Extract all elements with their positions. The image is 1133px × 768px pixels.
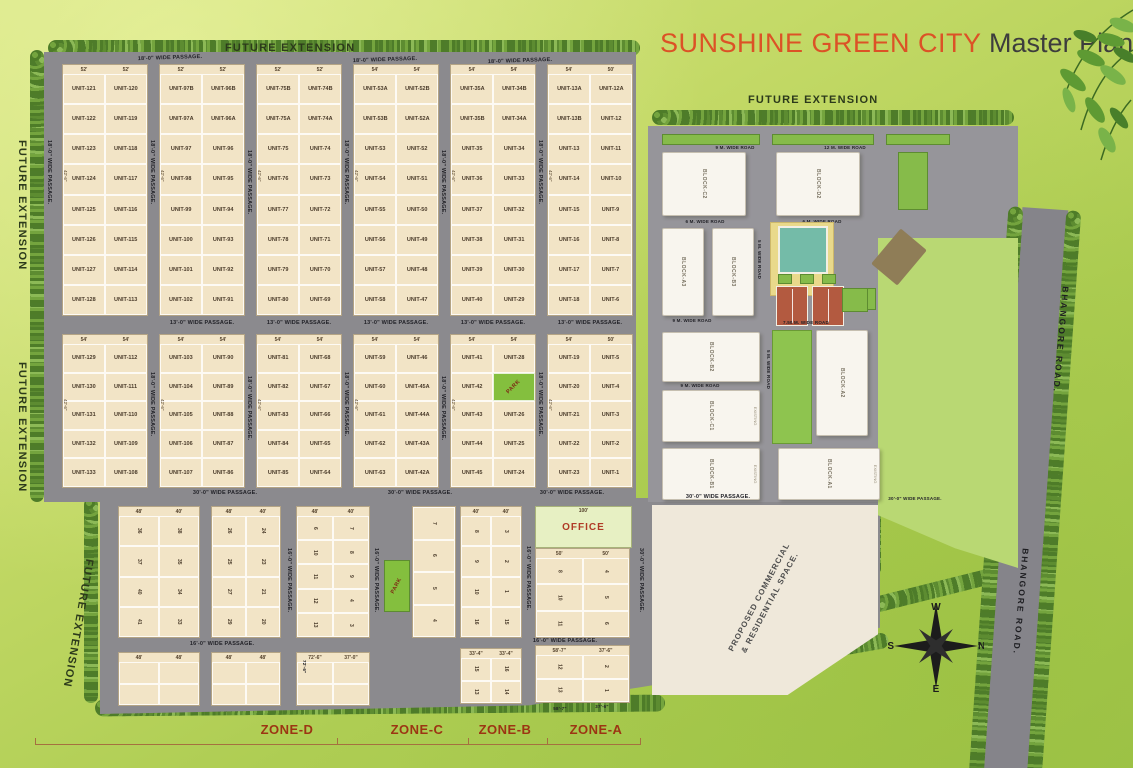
unit-plot: UNIT-92 bbox=[202, 255, 244, 285]
unit-plot: UNIT-68 bbox=[299, 344, 341, 373]
unit-plot: UNIT-131 bbox=[63, 401, 105, 430]
hedge-strip bbox=[772, 134, 874, 145]
unit-plot: UNIT-101 bbox=[160, 255, 202, 285]
unit-plot: UNIT-42A bbox=[396, 458, 438, 487]
future-extension-top: FUTURE EXTENSION bbox=[225, 42, 355, 54]
unit-plot: 8 bbox=[461, 516, 491, 546]
plot-block: 72'-6"37'-0" bbox=[296, 652, 370, 706]
unit-plot: 37 bbox=[119, 546, 159, 576]
compass-rose: W N S E bbox=[888, 598, 984, 694]
zone-tick bbox=[640, 738, 641, 745]
unit-plot: UNIT-104 bbox=[160, 373, 202, 402]
passage-label: 13'-0" WIDE PASSAGE. bbox=[364, 320, 428, 326]
passage-label: 16'-0" WIDE PASSAGE. bbox=[373, 548, 379, 612]
unit-plot: UNIT-73 bbox=[299, 164, 341, 194]
unit-plot: 7 bbox=[333, 516, 369, 540]
unit-plot: 10 bbox=[297, 540, 333, 564]
unit-plot bbox=[246, 662, 280, 684]
building-block: BLOCK-B3 bbox=[712, 228, 754, 316]
unit-plot: 12 bbox=[536, 655, 583, 679]
unit-plot: UNIT-60 bbox=[354, 373, 396, 402]
compass-e: E bbox=[933, 684, 940, 694]
passage-label: 18'-0" WIDE PASSAGE. bbox=[149, 372, 155, 436]
unit-plot: 34 bbox=[159, 577, 199, 607]
unit-plot: 12 bbox=[297, 589, 333, 613]
unit-plot: UNIT-96B bbox=[202, 74, 244, 104]
unit-plot: UNIT-75 bbox=[257, 134, 299, 164]
unit-plot bbox=[119, 684, 159, 706]
unit-plot: UNIT-4 bbox=[590, 373, 632, 402]
unit-plot: UNIT-110 bbox=[105, 401, 147, 430]
future-extension-left: FUTURE EXTENSION bbox=[16, 140, 28, 270]
unit-plot: 20 bbox=[246, 607, 280, 637]
unit-plot: UNIT-83 bbox=[257, 401, 299, 430]
passage-label: 16'-0" WIDE PASSAGE. bbox=[190, 641, 254, 647]
unit-plot: UNIT-38 bbox=[451, 225, 493, 255]
unit-plot: 16 bbox=[461, 607, 491, 637]
plot-block: 54'54'UNIT-103UNIT-90UNIT-104UNIT-89UNIT… bbox=[159, 334, 245, 488]
unit-plot: UNIT-45A bbox=[396, 373, 438, 402]
unit-plot: UNIT-118 bbox=[105, 134, 147, 164]
building-block-existing: BLOCK-B1 EXISTING bbox=[662, 448, 760, 500]
unit-plot: UNIT-87 bbox=[202, 430, 244, 459]
road-label: 5 M. WIDE ROAD bbox=[757, 240, 762, 279]
building-block-existing: BLOCK-A1 EXISTING bbox=[778, 448, 880, 500]
unit-plot: UNIT-126 bbox=[63, 225, 105, 255]
unit-plot: 21 bbox=[246, 577, 280, 607]
unit-plot: UNIT-55 bbox=[354, 195, 396, 225]
passage-label: 18'-0" WIDE PASSAGE. bbox=[537, 372, 543, 436]
unit-plot: UNIT-34A bbox=[493, 104, 535, 134]
unit-plot: UNIT-124 bbox=[63, 164, 105, 194]
unit-plot: UNIT-103 bbox=[160, 344, 202, 373]
plot-block: 54'54'UNIT-53AUNIT-52BUNIT-53BUNIT-52AUN… bbox=[353, 64, 439, 316]
unit-plot: UNIT-132 bbox=[63, 430, 105, 459]
unit-plot: 4 bbox=[333, 589, 369, 613]
unit-plot: UNIT-52 bbox=[396, 134, 438, 164]
unit-plot: UNIT-117 bbox=[105, 164, 147, 194]
unit-plot: UNIT-88 bbox=[202, 401, 244, 430]
plot-block: 54'54'UNIT-59UNIT-46UNIT-60UNIT-45AUNIT-… bbox=[353, 334, 439, 488]
unit-plot: UNIT-45 bbox=[451, 458, 493, 487]
unit-plot: UNIT-120 bbox=[105, 74, 147, 104]
unit-plot: 4 bbox=[413, 605, 455, 638]
unit-plot: 9 bbox=[333, 564, 369, 588]
passage-label: 18'-0" WIDE PASSAGE. bbox=[440, 376, 446, 440]
passage-label: 13'-0" WIDE PASSAGE. bbox=[170, 320, 234, 326]
passage-label: 13'-0" WIDE PASSAGE. bbox=[267, 320, 331, 326]
passage-label: 18'-0" WIDE PASSAGE. bbox=[246, 150, 252, 214]
unit-plot: 3 bbox=[333, 613, 369, 637]
unit-plot: UNIT-76 bbox=[257, 164, 299, 194]
unit-plot: 6 bbox=[413, 540, 455, 573]
unit-plot: 4 bbox=[583, 558, 630, 584]
unit-plot: UNIT-54 bbox=[354, 164, 396, 194]
unit-plot: UNIT-10 bbox=[590, 164, 632, 194]
building-block: BLOCK-D2 bbox=[776, 152, 860, 216]
unit-plot: UNIT-119 bbox=[105, 104, 147, 134]
plot-block: 54'50'UNIT-19UNIT-5UNIT-20UNIT-4UNIT-21U… bbox=[547, 334, 633, 488]
unit-plot: 15 bbox=[491, 607, 521, 637]
unit-plot: UNIT-42 bbox=[451, 373, 493, 402]
unit-plot: 25 bbox=[212, 546, 246, 576]
unit-plot: UNIT-94 bbox=[202, 195, 244, 225]
unit-plot: 41 bbox=[119, 607, 159, 637]
unit-plot: UNIT-95 bbox=[202, 164, 244, 194]
unit-plot bbox=[333, 684, 369, 706]
planter bbox=[778, 274, 792, 284]
unit-plot: UNIT-25 bbox=[493, 430, 535, 459]
unit-plot: UNIT-37 bbox=[451, 195, 493, 225]
unit-plot: 5 bbox=[583, 584, 630, 610]
unit-plot: UNIT-102 bbox=[160, 285, 202, 315]
unit-plot: UNIT-125 bbox=[63, 195, 105, 225]
unit-plot: 13 bbox=[461, 681, 491, 704]
unit-plot: UNIT-93 bbox=[202, 225, 244, 255]
unit-plot bbox=[246, 684, 280, 706]
zone-label-b: ZONE-B bbox=[479, 722, 532, 737]
road-label: 5 M. WIDE ROAD bbox=[766, 350, 771, 389]
unit-plot bbox=[212, 662, 246, 684]
unit-plot: 27 bbox=[212, 577, 246, 607]
unit-plot: UNIT-78 bbox=[257, 225, 299, 255]
unit-plot: UNIT-81 bbox=[257, 344, 299, 373]
unit-plot bbox=[212, 684, 246, 706]
unit-plot: UNIT-20 bbox=[548, 373, 590, 402]
plot-block: 48'40'2624252327212920 bbox=[211, 506, 281, 638]
plot-block: 54'54'UNIT-81UNIT-68UNIT-82UNIT-67UNIT-8… bbox=[256, 334, 342, 488]
unit-plot: 2 bbox=[583, 655, 630, 679]
green-patch bbox=[842, 288, 868, 312]
unit-plot: UNIT-28 bbox=[493, 344, 535, 373]
green-patch bbox=[898, 152, 928, 210]
unit-plot: UNIT-48 bbox=[396, 255, 438, 285]
unit-plot: UNIT-12A bbox=[590, 74, 632, 104]
unit-plot: UNIT-111 bbox=[105, 373, 147, 402]
unit-plot: UNIT-85 bbox=[257, 458, 299, 487]
passage-label: 30'-0" WIDE PASSAGE. bbox=[193, 490, 257, 496]
unit-plot: 23 bbox=[246, 546, 280, 576]
unit-plot: UNIT-40 bbox=[451, 285, 493, 315]
unit-plot: UNIT-44A bbox=[396, 401, 438, 430]
unit-plot: UNIT-63 bbox=[354, 458, 396, 487]
unit-plot: UNIT-51 bbox=[396, 164, 438, 194]
unit-plot: UNIT-91 bbox=[202, 285, 244, 315]
unit-plot: UNIT-61 bbox=[354, 401, 396, 430]
plot-block: 54'50'UNIT-13AUNIT-12AUNIT-13BUNIT-12UNI… bbox=[547, 64, 633, 316]
passage-label: 18'-0" WIDE PASSAGE. bbox=[343, 372, 349, 436]
unit-plot: UNIT-129 bbox=[63, 344, 105, 373]
unit-plot bbox=[333, 662, 369, 684]
unit-plot: UNIT-97 bbox=[160, 134, 202, 164]
unit-plot: UNIT-19 bbox=[548, 344, 590, 373]
passage-label: 18'-0" WIDE PASSAGE. bbox=[343, 140, 349, 204]
unit-plot: UNIT-26 bbox=[493, 401, 535, 430]
road-label: 9 M. WIDE ROAD bbox=[672, 318, 711, 323]
unit-plot: UNIT-9 bbox=[590, 195, 632, 225]
office-plot: 100' OFFICE bbox=[535, 506, 632, 548]
unit-plot: UNIT-24 bbox=[493, 458, 535, 487]
unit-plot: UNIT-109 bbox=[105, 430, 147, 459]
passage-label: 16'-0" WIDE PASSAGE. bbox=[525, 546, 531, 610]
unit-plot: UNIT-52B bbox=[396, 74, 438, 104]
proposed-commercial-area: PROPOSED COMMERCIAL & RESIDENTIAL SPACE. bbox=[652, 505, 878, 695]
unit-plot: UNIT-39 bbox=[451, 255, 493, 285]
passage-label: 18'-0" WIDE PASSAGE. bbox=[149, 140, 155, 204]
unit-plot: UNIT-82 bbox=[257, 373, 299, 402]
unit-plot: 1 bbox=[583, 679, 630, 703]
unit-plot: 3 bbox=[491, 516, 521, 546]
hedge-strip bbox=[662, 134, 760, 145]
zone-label-c: ZONE-C bbox=[391, 722, 444, 737]
unit-plot: UNIT-15 bbox=[548, 195, 590, 225]
unit-plot: UNIT-106 bbox=[160, 430, 202, 459]
park-plot: PARK bbox=[384, 560, 410, 612]
unit-plot: 13 bbox=[297, 613, 333, 637]
unit-plot: 11 bbox=[536, 611, 583, 637]
unit-plot: UNIT-67 bbox=[299, 373, 341, 402]
unit-plot: UNIT-36 bbox=[451, 164, 493, 194]
plot-block: 52'52'UNIT-97BUNIT-96BUNIT-97AUNIT-96AUN… bbox=[159, 64, 245, 316]
unit-plot: UNIT-72 bbox=[299, 195, 341, 225]
unit-plot: UNIT-99 bbox=[160, 195, 202, 225]
unit-plot: UNIT-75A bbox=[257, 104, 299, 134]
dim-label: 37'-6" bbox=[595, 704, 608, 709]
unit-plot: 10 bbox=[461, 577, 491, 607]
unit-plot: UNIT-69 bbox=[299, 285, 341, 315]
unit-plot: UNIT-97A bbox=[160, 104, 202, 134]
unit-plot: UNIT-3 bbox=[590, 401, 632, 430]
unit-plot: UNIT-86 bbox=[202, 458, 244, 487]
unit-plot: UNIT-70 bbox=[299, 255, 341, 285]
unit-plot: UNIT-98 bbox=[160, 164, 202, 194]
plot-block: 48'40'3638373540344133 bbox=[118, 506, 200, 638]
unit-plot: UNIT-128 bbox=[63, 285, 105, 315]
unit-plot: UNIT-16 bbox=[548, 225, 590, 255]
dim-label: 72'-6" bbox=[302, 660, 307, 673]
office-dim: 100' bbox=[579, 508, 589, 514]
unit-plot: UNIT-49 bbox=[396, 225, 438, 255]
unit-plot: UNIT-18 bbox=[548, 285, 590, 315]
tree-hedge bbox=[30, 50, 44, 502]
unit-plot: 6 bbox=[297, 516, 333, 540]
zone-tick bbox=[468, 738, 469, 745]
unit-plot: UNIT-6 bbox=[590, 285, 632, 315]
lawn-strip bbox=[772, 330, 812, 444]
compass-s: S bbox=[888, 641, 894, 652]
unit-plot: UNIT-59 bbox=[354, 344, 396, 373]
unit-plot: 9 bbox=[461, 546, 491, 576]
unit-plot: UNIT-8 bbox=[590, 225, 632, 255]
unit-plot: UNIT-130 bbox=[63, 373, 105, 402]
future-extension-left: FUTURE EXTENSION bbox=[16, 362, 28, 492]
unit-plot: 38 bbox=[159, 516, 199, 546]
unit-plot: UNIT-44 bbox=[451, 430, 493, 459]
unit-plot: UNIT-35 bbox=[451, 134, 493, 164]
park-label: PARK bbox=[390, 577, 403, 595]
plot-block: 48'48' bbox=[211, 652, 281, 706]
passage-label: 16'-0" WIDE PASSAGE. bbox=[286, 548, 292, 612]
tree-hedge bbox=[1026, 210, 1082, 768]
passage-label: 30'-0" WIDE PASSAGE. bbox=[638, 548, 644, 612]
unit-plot: UNIT-71 bbox=[299, 225, 341, 255]
future-extension-right: FUTURE EXTENSION bbox=[748, 94, 878, 106]
unit-plot: UNIT-114 bbox=[105, 255, 147, 285]
road-label: 12 M. WIDE ROAD bbox=[824, 145, 866, 150]
unit-plot: UNIT-35B bbox=[451, 104, 493, 134]
passage-label: 30'-0" WIDE PASSAGE. bbox=[686, 494, 750, 500]
passage-label: 18'-0" WIDE PASSAGE. bbox=[537, 140, 543, 204]
unit-plot: UNIT-13A bbox=[548, 74, 590, 104]
dim-label: 58'-7" bbox=[553, 706, 566, 711]
unit-plot: UNIT-32 bbox=[493, 195, 535, 225]
passage-label: 18'-0" WIDE PASSAGE. bbox=[46, 140, 52, 204]
unit-plot: 26 bbox=[212, 516, 246, 546]
unit-plot: UNIT-14 bbox=[548, 164, 590, 194]
unit-plot: UNIT-79 bbox=[257, 255, 299, 285]
zone-tick bbox=[547, 738, 548, 745]
unit-plot: UNIT-74 bbox=[299, 134, 341, 164]
decor-leaves bbox=[973, 0, 1133, 170]
unit-plot: 16 bbox=[491, 658, 521, 681]
unit-plot: 6 bbox=[583, 611, 630, 637]
unit-plot: 2 bbox=[491, 546, 521, 576]
unit-plot: UNIT-107 bbox=[160, 458, 202, 487]
plot-block: 48'40'67108119124133 bbox=[296, 506, 370, 638]
plot-block: 50'50'84105116 bbox=[535, 548, 630, 638]
unit-plot: UNIT-13 bbox=[548, 134, 590, 164]
unit-plot: 1 bbox=[491, 577, 521, 607]
unit-plot: UNIT-17 bbox=[548, 255, 590, 285]
project-name: SUNSHINE GREEN CITY bbox=[660, 28, 982, 58]
unit-plot: 7 bbox=[413, 507, 455, 540]
unit-plot: UNIT-100 bbox=[160, 225, 202, 255]
passage-label: 30'-0" WIDE PASSAGE. bbox=[888, 496, 941, 501]
unit-plot: UNIT-108 bbox=[105, 458, 147, 487]
plot-block: 40'40'83921011615 bbox=[460, 506, 522, 638]
passage-label: 18'-0" WIDE PASSAGE. bbox=[246, 376, 252, 440]
plot-block: 52'52'UNIT-75BUNIT-74BUNIT-75AUNIT-74AUN… bbox=[256, 64, 342, 316]
passage-label: 13'-0" WIDE PASSAGE. bbox=[461, 320, 525, 326]
unit-plot: UNIT-31 bbox=[493, 225, 535, 255]
unit-plot: UNIT-34B bbox=[493, 74, 535, 104]
unit-plot: UNIT-33 bbox=[493, 164, 535, 194]
unit-plot: UNIT-53B bbox=[354, 104, 396, 134]
unit-plot: 14 bbox=[491, 681, 521, 704]
commercial-label: PROPOSED COMMERCIAL & RESIDENTIAL SPACE. bbox=[726, 541, 804, 660]
unit-plot: UNIT-43A bbox=[396, 430, 438, 459]
unit-plot: 10 bbox=[536, 584, 583, 610]
unit-plot: UNIT-115 bbox=[105, 225, 147, 255]
road-label: 6 M. WIDE ROAD bbox=[685, 219, 724, 224]
unit-plot: UNIT-52A bbox=[396, 104, 438, 134]
unit-plot: UNIT-41 bbox=[451, 344, 493, 373]
swimming-pool bbox=[778, 226, 828, 274]
unit-plot: UNIT-50 bbox=[396, 195, 438, 225]
unit-plot bbox=[159, 662, 199, 684]
unit-plot: UNIT-12 bbox=[590, 104, 632, 134]
unit-plot bbox=[119, 662, 159, 684]
unit-plot: UNIT-112 bbox=[105, 344, 147, 373]
unit-plot: UNIT-105 bbox=[160, 401, 202, 430]
open-field bbox=[878, 238, 1018, 568]
unit-plot: UNIT-121 bbox=[63, 74, 105, 104]
passage-label: 30'-0" WIDE PASSAGE. bbox=[388, 490, 452, 496]
unit-plot: 33 bbox=[159, 607, 199, 637]
passage-label: 18'-0" WIDE PASSAGE. bbox=[440, 150, 446, 214]
unit-plot: UNIT-80 bbox=[257, 285, 299, 315]
unit-plot: 36 bbox=[119, 516, 159, 546]
unit-plot: UNIT-116 bbox=[105, 195, 147, 225]
unit-plot: UNIT-65 bbox=[299, 430, 341, 459]
plot-block: 54'54'UNIT-129UNIT-112UNIT-130UNIT-111UN… bbox=[62, 334, 148, 488]
zone-tick bbox=[337, 738, 338, 745]
tree-hedge bbox=[652, 110, 1014, 125]
unit-plot: UNIT-58 bbox=[354, 285, 396, 315]
plot-block: 33'-4"33'-4"15161314 bbox=[460, 648, 522, 704]
planter bbox=[800, 274, 814, 284]
unit-plot: UNIT-113 bbox=[105, 285, 147, 315]
office-label: OFFICE bbox=[562, 522, 605, 533]
passage-label: 30'-0" WIDE PASSAGE. bbox=[540, 490, 604, 496]
unit-plot: UNIT-23 bbox=[548, 458, 590, 487]
plot-block: 52'52'UNIT-121UNIT-120UNIT-122UNIT-119UN… bbox=[62, 64, 148, 316]
unit-plot: 11 bbox=[297, 564, 333, 588]
unit-plot: UNIT-89 bbox=[202, 373, 244, 402]
passage-label: 16'-0" WIDE PASSAGE. bbox=[533, 638, 597, 644]
unit-plot: UNIT-97B bbox=[160, 74, 202, 104]
unit-plot: UNIT-29 bbox=[493, 285, 535, 315]
unit-plot: 35 bbox=[159, 546, 199, 576]
unit-plot: UNIT-43 bbox=[451, 401, 493, 430]
unit-plot: UNIT-133 bbox=[63, 458, 105, 487]
zone-label-d: ZONE-D bbox=[261, 722, 314, 737]
plot-block: 54'54'UNIT-41UNIT-28UNIT-42PARKUNIT-43UN… bbox=[450, 334, 536, 488]
plot-block: 48'48' bbox=[118, 652, 200, 706]
unit-plot: UNIT-21 bbox=[548, 401, 590, 430]
unit-plot: 13 bbox=[536, 679, 583, 703]
unit-plot: 29 bbox=[212, 607, 246, 637]
compass-w: W bbox=[931, 602, 941, 613]
unit-plot: 40 bbox=[119, 577, 159, 607]
passage-label: 13'-0" WIDE PASSAGE. bbox=[558, 320, 622, 326]
unit-plot: UNIT-77 bbox=[257, 195, 299, 225]
unit-plot: UNIT-127 bbox=[63, 255, 105, 285]
unit-plot: UNIT-66 bbox=[299, 401, 341, 430]
unit-plot: UNIT-13B bbox=[548, 104, 590, 134]
unit-plot: 24 bbox=[246, 516, 280, 546]
building-block: BLOCK-A2 bbox=[816, 330, 868, 436]
park-plot: PARK bbox=[493, 373, 535, 402]
unit-plot: 15 bbox=[461, 658, 491, 681]
road-label: 9 M. WIDE ROAD bbox=[680, 383, 719, 388]
unit-plot: UNIT-75B bbox=[257, 74, 299, 104]
unit-plot: 5 bbox=[413, 572, 455, 605]
building-block: BLOCK-B2 bbox=[662, 332, 760, 382]
building-block: BLOCK-C2 bbox=[662, 152, 746, 216]
unit-plot: UNIT-30 bbox=[493, 255, 535, 285]
plot-block: 7654 bbox=[412, 506, 456, 638]
hedge-strip bbox=[886, 134, 950, 145]
unit-plot: UNIT-62 bbox=[354, 430, 396, 459]
unit-plot: 8 bbox=[536, 558, 583, 584]
unit-plot: UNIT-53A bbox=[354, 74, 396, 104]
unit-plot: UNIT-7 bbox=[590, 255, 632, 285]
unit-plot: UNIT-47 bbox=[396, 285, 438, 315]
unit-plot: UNIT-11 bbox=[590, 134, 632, 164]
unit-plot: UNIT-74B bbox=[299, 74, 341, 104]
plot-block: 58'-7"37'-6"122131 bbox=[535, 645, 630, 703]
